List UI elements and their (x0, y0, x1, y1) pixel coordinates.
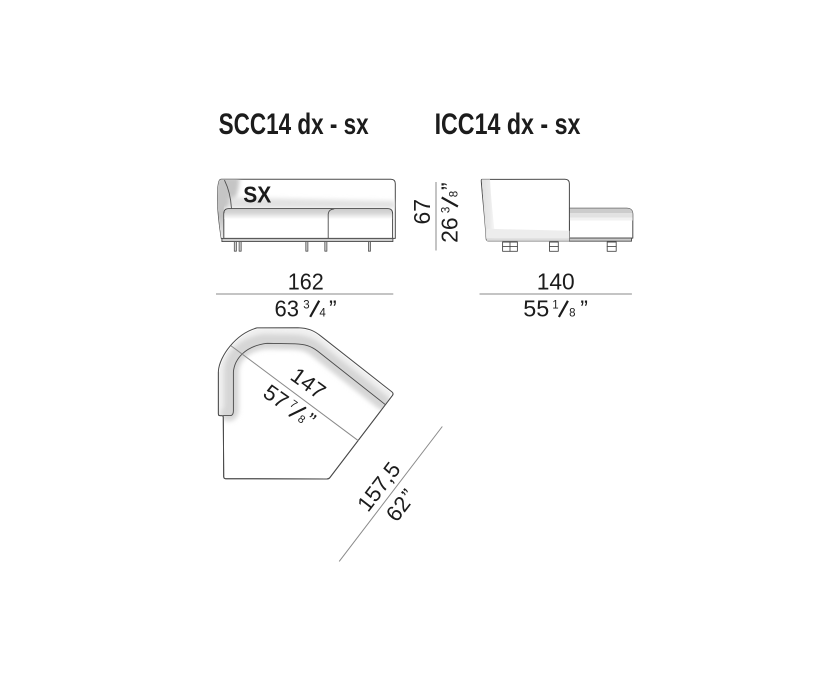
svg-text:63: 63 (275, 296, 300, 322)
svg-text:55: 55 (523, 296, 549, 322)
svg-text:3: 3 (303, 299, 309, 311)
svg-text:”: ” (329, 296, 337, 322)
svg-text:3: 3 (440, 207, 452, 213)
svg-text:8: 8 (449, 191, 461, 197)
svg-text:SCC14 dx - sx: SCC14 dx - sx (219, 108, 369, 141)
svg-text:26: 26 (437, 217, 463, 243)
svg-text:8: 8 (569, 308, 575, 320)
svg-text:SX: SX (243, 181, 272, 207)
svg-text:140: 140 (537, 269, 575, 295)
svg-text:4: 4 (319, 308, 326, 320)
svg-text:67: 67 (409, 199, 435, 225)
svg-text:162: 162 (288, 269, 324, 295)
svg-text:1: 1 (552, 300, 558, 312)
svg-text:”: ” (580, 296, 588, 322)
svg-text:”: ” (437, 182, 463, 190)
svg-text:ICC14 dx - sx: ICC14 dx - sx (435, 108, 581, 141)
